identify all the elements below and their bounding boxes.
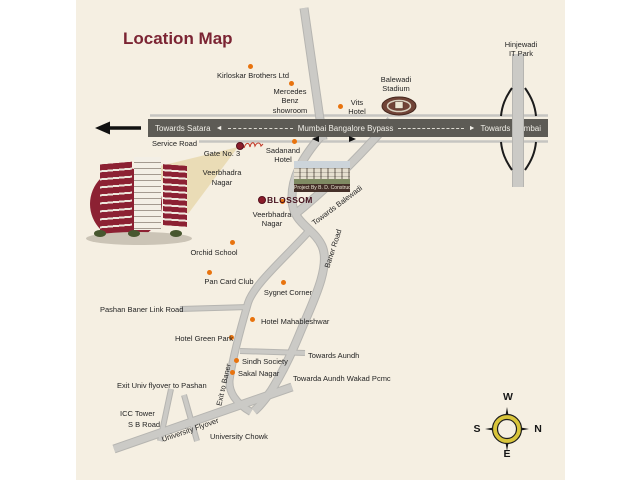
project-logo-icon: [244, 143, 263, 148]
poi-dot-sadanand: [292, 139, 297, 144]
label-kirloskar-brothers: Kirloskar Brothers Ltd: [217, 71, 289, 80]
label-vits-hotel: Vits Hotel: [348, 98, 366, 117]
label-mercedes-benz: Mercedes Benz showroom: [273, 87, 308, 115]
label-hinjewadi-it-park: Hinjewadi IT Park: [505, 40, 538, 59]
poi-dot-pan-card: [207, 270, 212, 275]
poi-dot-blossom: [258, 196, 266, 204]
label-pan-card-club: Pan Card Club: [204, 277, 253, 286]
poi-dot-orchid: [230, 240, 235, 245]
label-veerbhadra-nagar: Veerbhadra Nagar: [253, 210, 292, 229]
poi-dot-kirloskar: [248, 64, 253, 69]
poi-dot-mahableshwar: [250, 317, 255, 322]
gate-area: Veerbhadra Nagar: [203, 168, 242, 187]
label-sadanand-hotel: Sadanand Hotel: [266, 146, 300, 165]
label-blossom: BLOSSOM: [267, 195, 313, 206]
label-project-gate: Gate No. 3 Veerbhadra Nagar: [203, 140, 242, 196]
poi-dot-mercedes: [289, 81, 294, 86]
poi-dot-vits: [338, 104, 343, 109]
compass-east: E: [503, 448, 510, 460]
label-balewadi-stadium: Balewadi Stadium: [381, 75, 411, 94]
label-sakal-nagar: Sakal Nagar: [238, 369, 279, 378]
label-service-road: Service Road: [150, 139, 199, 148]
compass-rose-icon: [485, 407, 529, 451]
blossom-building-image: Project By B. D. Constructions: [294, 161, 350, 192]
service-road-oneway-right-icon: [349, 136, 356, 142]
label-hotel-green-park: Hotel Green Park: [175, 334, 233, 343]
project-caption: Project By B. D. Constructions: [294, 184, 350, 192]
label-s-b-road: S B Road: [128, 420, 160, 429]
label-hotel-mahableshwar: Hotel Mahableshwar: [261, 317, 329, 326]
compass-north: N: [534, 423, 542, 435]
balewadi-stadium-icon: [382, 97, 416, 115]
poi-dot-sindh: [234, 358, 239, 363]
gate-number: Gate No. 3: [203, 149, 242, 158]
project-building-image: [84, 152, 196, 248]
label-pashan-baner-link-road: Pashan Baner Link Road: [100, 305, 183, 314]
location-map: Towards Satara ◄ Mumbai Bangalore Bypass…: [0, 0, 640, 480]
label-towards-aundh: Towards Aundh: [308, 351, 359, 360]
page-title: Location Map: [123, 29, 233, 49]
label-sindh-society: Sindh Society: [242, 357, 288, 366]
label-sygnet-corner: Sygnet Corner: [264, 288, 312, 297]
west-direction-arrowhead-icon: [95, 122, 110, 135]
compass-south: S: [473, 423, 480, 435]
label-icc-tower: ICC Tower: [120, 409, 155, 418]
poi-dot-sygnet: [281, 280, 286, 285]
label-towards-aundh-wakad-pcmc: Towarda Aundh Wakad Pcmc: [293, 374, 391, 383]
label-university-chowk: University Chowk: [210, 432, 268, 441]
label-exit-univ-flyover-to-pashan: Exit Univ flyover to Pashan: [117, 381, 207, 390]
compass-west: W: [503, 391, 513, 403]
label-orchid-school: Orchid School: [190, 248, 237, 257]
service-road-oneway-left-icon: [312, 136, 319, 142]
